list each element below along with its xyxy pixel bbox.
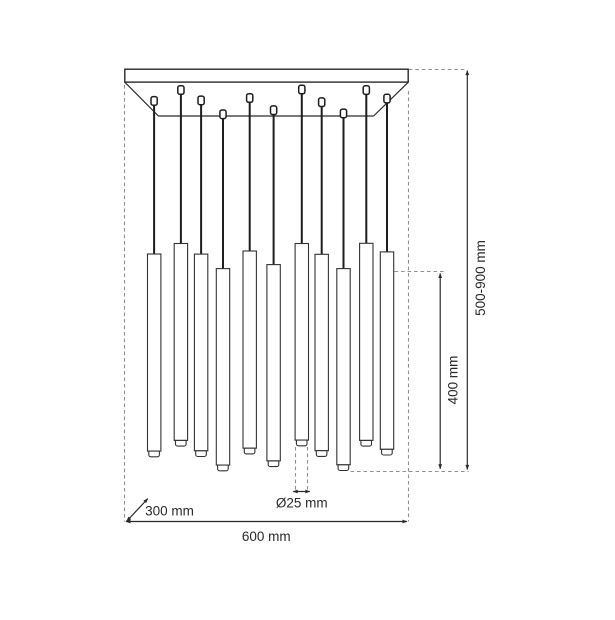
- svg-text:400 mm: 400 mm: [446, 356, 461, 405]
- svg-text:500-900 mm: 500-900 mm: [473, 240, 488, 316]
- svg-text:300 mm: 300 mm: [145, 504, 194, 519]
- svg-text:Ø25 mm: Ø25 mm: [276, 495, 328, 510]
- svg-text:600 mm: 600 mm: [242, 529, 291, 544]
